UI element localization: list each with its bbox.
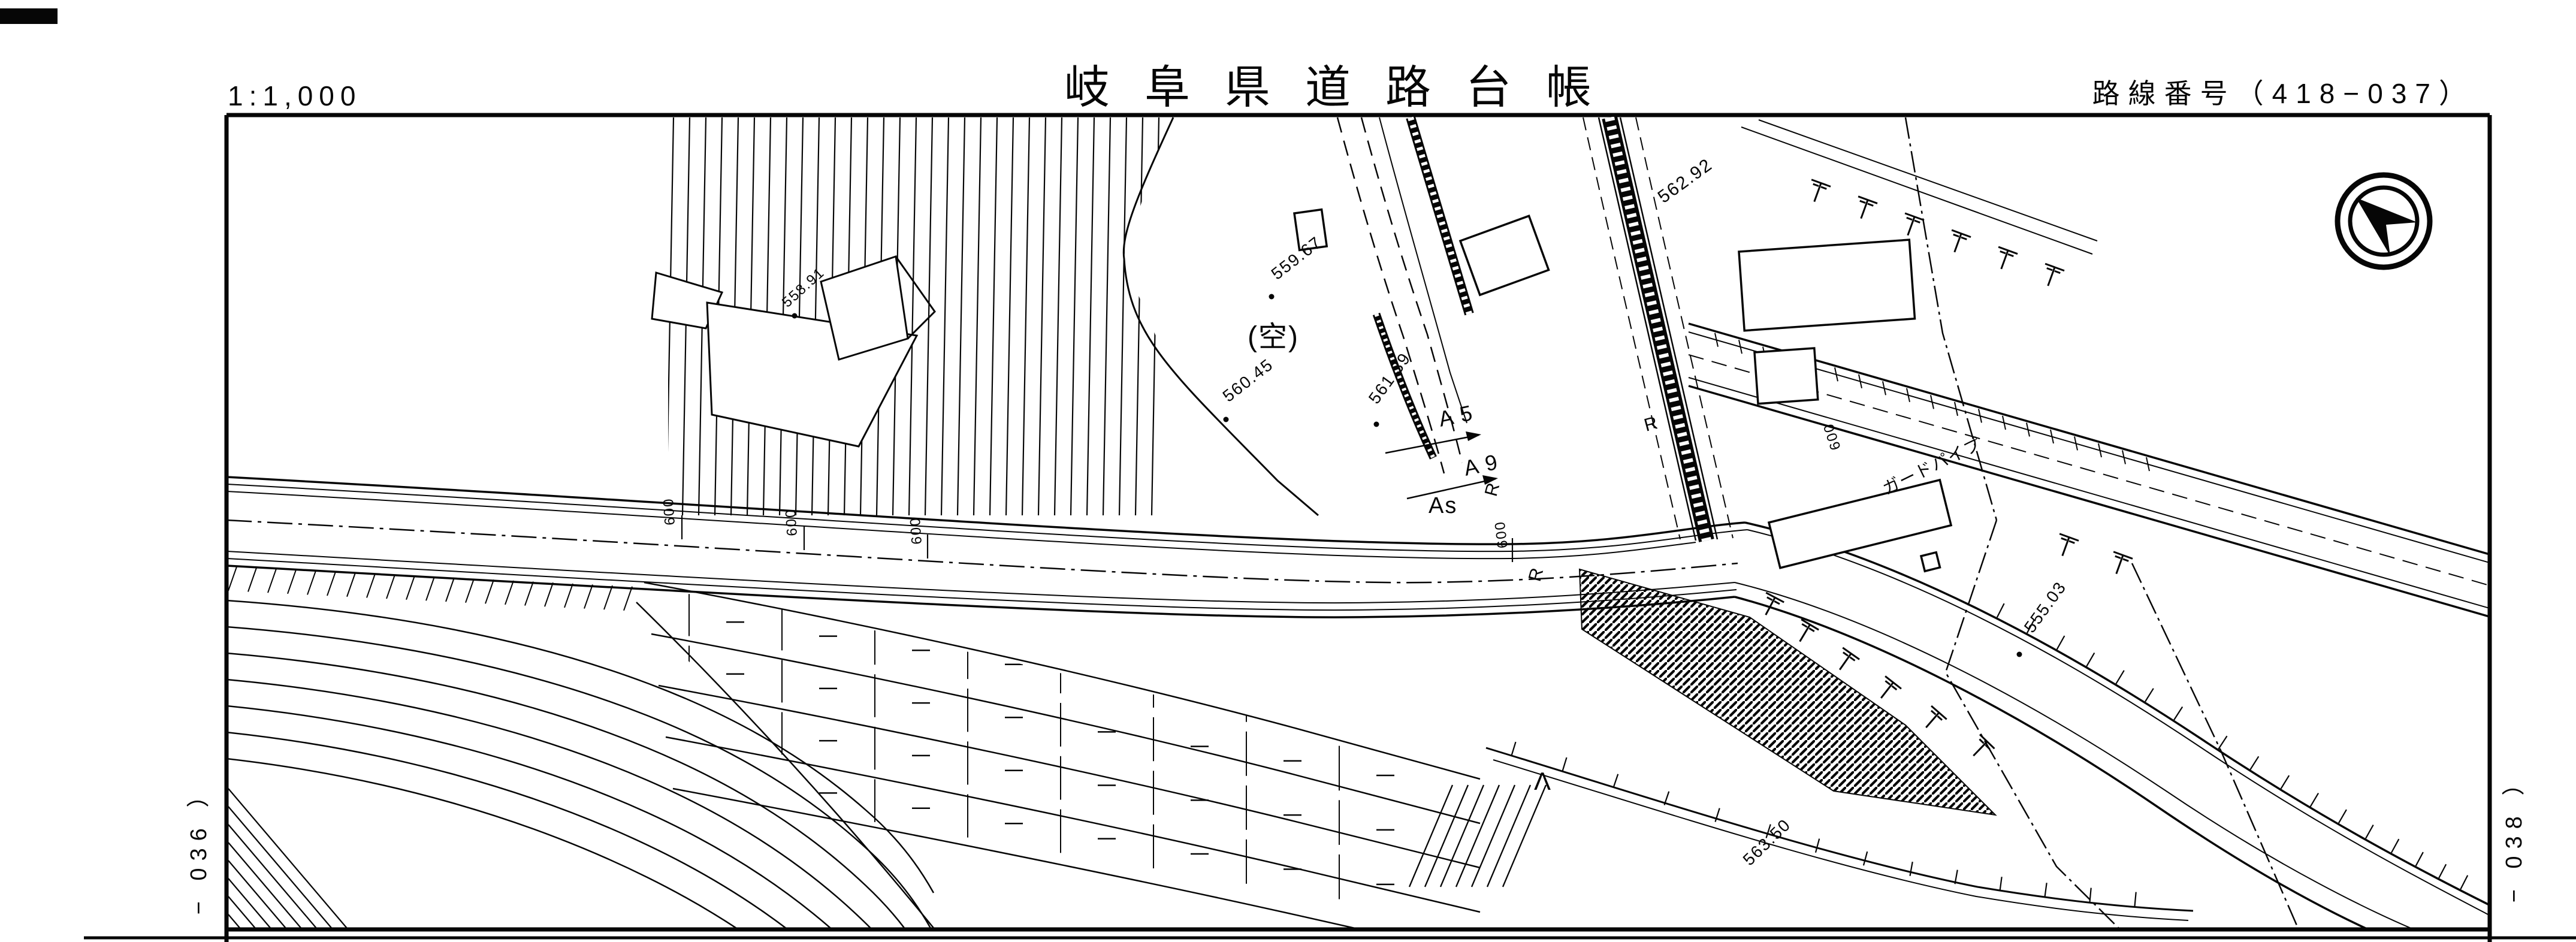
map-linework <box>327 572 336 596</box>
point-label-a5: A 5 <box>1436 400 1475 431</box>
map-linework <box>974 117 981 515</box>
curve-label-r2: R <box>1642 413 1660 436</box>
map-linework <box>1006 117 1013 515</box>
station-label-1: 600 <box>660 497 678 526</box>
road-ledger-sheet: 1:1,000 岐阜県道路台帳 路線番号（418−037） − 036 ） − … <box>0 0 2576 942</box>
station-label-2: 600 <box>783 508 801 537</box>
map-linework <box>1759 120 2097 241</box>
station-label-4: 600 <box>1492 520 1511 549</box>
building-outline <box>1754 348 1818 404</box>
map-linework <box>2391 839 2399 853</box>
map-linework <box>2366 825 2373 839</box>
map-linework <box>2135 892 2136 907</box>
station-label-3: 600 <box>907 517 925 545</box>
left-sheet-ref: − 036 ） <box>186 778 212 915</box>
spot-height-dot <box>1269 294 1275 300</box>
map-linework <box>2086 653 2094 666</box>
map-linework <box>228 843 301 928</box>
map-linework <box>1741 127 2092 254</box>
map-linework <box>367 573 375 597</box>
route-number-label: 路線番号（418−037） <box>2092 78 2475 109</box>
map-linework <box>2218 736 2227 749</box>
map-linework <box>426 576 434 600</box>
spot-height-dot <box>792 313 798 319</box>
paddy-row-line <box>666 737 1480 912</box>
map-linework <box>1038 117 1046 515</box>
map-linework <box>228 861 286 928</box>
map-linework <box>1512 742 1516 756</box>
map-linework <box>1055 117 1062 515</box>
map-linework <box>1563 757 1567 771</box>
map-linework <box>564 584 573 608</box>
map-linework <box>307 570 316 594</box>
paddy-rows <box>689 594 1394 899</box>
map-drawing <box>227 117 2492 942</box>
map-linework <box>227 627 934 934</box>
map-linework <box>386 575 395 599</box>
map-linework <box>2439 864 2446 878</box>
map-linework <box>584 585 593 609</box>
page-title: 岐阜県道路台帳 <box>1064 62 1626 113</box>
map-linework <box>545 582 553 606</box>
map-linework <box>990 117 997 515</box>
point-label-a9: A 9 <box>1461 449 1500 481</box>
spot-height-dot <box>1224 417 1229 422</box>
map-linework <box>2174 707 2182 720</box>
parcel-boundary <box>1946 520 2120 929</box>
map-linework <box>1689 378 2492 609</box>
map-linework <box>604 585 612 609</box>
map-linework <box>466 579 474 603</box>
map-linework <box>2311 793 2318 807</box>
sheet-frame <box>84 115 2576 942</box>
spot-height-558-91: 558.91 <box>779 264 828 310</box>
paddy-row-line <box>651 634 1480 823</box>
map-linework <box>228 807 332 928</box>
map-linework <box>248 568 256 592</box>
map-linework <box>1022 117 1029 515</box>
map-linework <box>1910 862 1913 876</box>
map-linework <box>909 117 916 515</box>
spot-height-559-67: 559.67 <box>1268 233 1325 283</box>
tree-symbol <box>1992 247 2018 273</box>
spot-height-560-45: 560.45 <box>1219 355 1277 406</box>
map-linework <box>406 576 415 600</box>
map-linework <box>505 581 514 605</box>
survey-symbol-label: Λ <box>1534 767 1552 795</box>
tree-symbol <box>1898 213 1924 239</box>
map-linework <box>227 477 1745 544</box>
map-linework <box>2281 775 2290 789</box>
map-linework <box>1689 386 2492 617</box>
tree-symbol <box>1873 676 1901 704</box>
building-outline <box>1921 552 1940 572</box>
map-linework <box>636 602 935 929</box>
surface-label-as: As <box>1429 493 1457 518</box>
map-linework <box>812 117 819 515</box>
map-linework <box>288 570 296 594</box>
building-outline <box>1460 216 1549 295</box>
map-linework <box>228 567 237 591</box>
map-linework <box>624 587 632 611</box>
right-sheet-ref: − 038 ） <box>2502 766 2527 903</box>
tree-symbol <box>1966 735 1994 763</box>
tree-symbol <box>1831 648 1859 676</box>
map-linework <box>485 579 494 603</box>
tree-symbol <box>2053 534 2079 560</box>
spot-height-555-03: 555.03 <box>2021 578 2070 636</box>
map-linework <box>268 569 276 593</box>
map-linework <box>228 914 240 928</box>
paddy-row-line <box>644 582 1480 779</box>
map-linework <box>227 759 934 942</box>
spot-height-dot <box>2017 652 2022 657</box>
map-linework <box>227 484 1747 551</box>
map-linework <box>1997 603 2004 617</box>
map-linework <box>227 653 934 942</box>
north-arrow-icon <box>2338 175 2430 267</box>
map-linework <box>2250 756 2258 769</box>
map-linework <box>1816 839 1819 853</box>
tree-symbol <box>2039 264 2064 289</box>
arrow-head <box>1466 431 1481 441</box>
scale-label: 1:1,000 <box>228 80 361 111</box>
tree-symbol <box>1945 230 1971 256</box>
tree-symbol <box>1757 593 1784 620</box>
map-linework <box>2460 875 2468 889</box>
spot-height-562-92: 562.92 <box>1654 155 1716 207</box>
land-use-vacant: (空) <box>1248 321 1299 353</box>
map-linework <box>2000 877 2002 891</box>
tree-symbol <box>1805 180 1831 206</box>
curve-label-r1: R <box>1481 479 1504 498</box>
map-linework <box>2145 689 2154 702</box>
spot-height-563-50: 563.50 <box>1740 815 1795 869</box>
map-linework <box>525 582 533 606</box>
map-linework <box>228 896 255 928</box>
map-linework <box>1071 117 1078 515</box>
map-linework <box>1087 117 1094 515</box>
map-linework <box>2045 883 2047 897</box>
map-linework <box>227 491 1696 558</box>
map-linework <box>227 558 1737 610</box>
map-linework <box>2339 810 2347 823</box>
map-linework <box>1152 117 1159 515</box>
paddy-row-line <box>673 789 1480 942</box>
tree-symbol <box>1918 706 1946 734</box>
scan-corner-mark <box>0 8 58 24</box>
tree-symbol <box>2107 552 2133 578</box>
map-linework <box>228 789 347 928</box>
map-linework <box>2416 852 2423 866</box>
map-linework <box>446 578 454 602</box>
parcel-boundary <box>2132 563 2299 929</box>
map-linework <box>347 573 355 597</box>
map-linework <box>1864 852 1867 865</box>
hatched-bank-wedge <box>1580 569 1995 815</box>
map-linework <box>958 117 965 515</box>
map-linework <box>1103 117 1110 515</box>
tree-symbol <box>1852 197 1877 222</box>
map-linework <box>1614 774 1618 788</box>
station-label-5: 600 <box>1820 421 1844 452</box>
spot-height-dot <box>1374 422 1379 427</box>
map-linework <box>2116 671 2124 684</box>
map-linework <box>1119 117 1127 515</box>
map-linework <box>2057 636 2065 650</box>
map-linework <box>1136 117 1143 515</box>
curve-label-r3: R <box>1525 564 1548 583</box>
building-outline <box>1739 240 1915 331</box>
map-linework <box>941 117 949 515</box>
